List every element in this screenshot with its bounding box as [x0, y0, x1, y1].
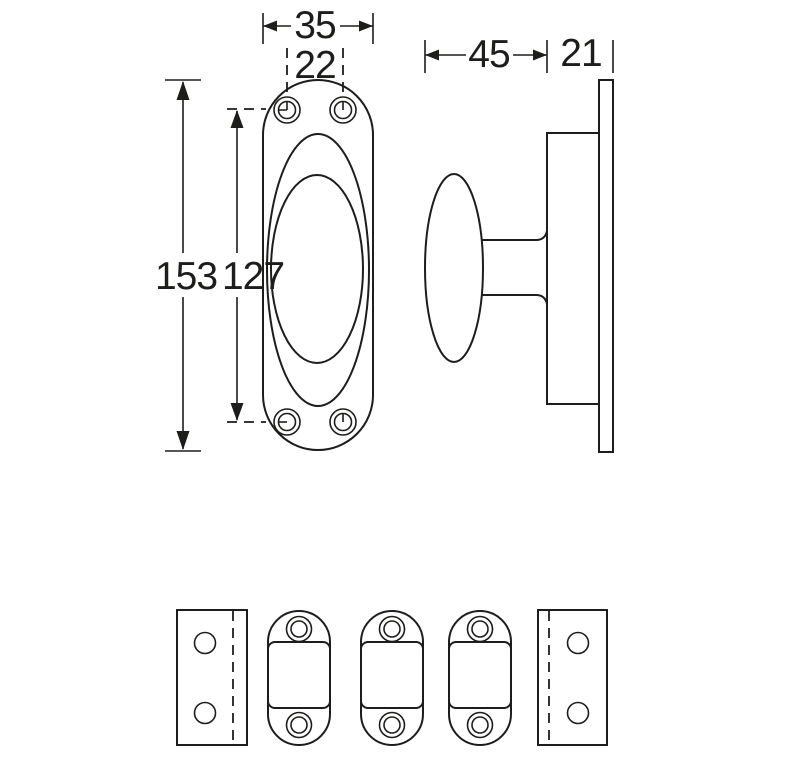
dimension-label-22: 22 [294, 44, 335, 87]
dimension-label-127: 127 [222, 255, 284, 298]
side-view-knob [425, 80, 613, 452]
arrowhead-right [359, 21, 373, 32]
dimension-hole-spacing: 22 [287, 44, 343, 96]
dimension-plate-height: 153 [155, 80, 217, 451]
keeper-outline [268, 611, 330, 745]
keeper-plate-2 [361, 611, 423, 745]
dimension-knob-projection: 45 [425, 33, 547, 76]
dimension-hole-distance: 127 [222, 109, 284, 422]
screw-hole [568, 633, 589, 654]
drawing-canvas: 35 22 153 [0, 0, 800, 774]
keeper-outline [361, 611, 423, 745]
keeper-raised-band [268, 642, 330, 708]
screw-hole-top-right [330, 97, 356, 123]
mounting-angle-plate-right [538, 610, 607, 745]
screw-hole-bottom-right [330, 409, 356, 435]
keeper-plate-1 [268, 611, 330, 745]
screw-hole-bottom-left [274, 409, 300, 435]
drawing-root: 35 22 153 [155, 4, 613, 745]
knob-side-profile [425, 174, 483, 362]
arrowhead-left [263, 21, 277, 32]
backplate-side-profile [599, 80, 613, 452]
screw-hole [287, 713, 312, 738]
keeper-plate-3 [449, 611, 511, 745]
screw-hole [380, 713, 405, 738]
knob-neck-top [481, 231, 547, 240]
arrowhead-down [177, 431, 190, 450]
screw-hole [380, 617, 405, 642]
screw-hole [468, 713, 493, 738]
dimension-label-21: 21 [560, 32, 601, 75]
arrowhead-right [533, 50, 547, 61]
angle-plate-outline [177, 610, 247, 745]
dimension-plate-width: 35 [263, 4, 373, 47]
dimension-label-153: 153 [155, 255, 217, 298]
screw-hole [468, 617, 493, 642]
dimension-label-45: 45 [468, 33, 510, 76]
arrowhead-up [177, 81, 190, 100]
keeper-outline [449, 611, 511, 745]
arrowhead-up [231, 110, 244, 128]
keeper-raised-band [449, 642, 511, 708]
technical-drawing-page: 35 22 153 [0, 0, 800, 774]
knob-front-oval [271, 175, 363, 363]
arrowhead-left [425, 50, 439, 61]
dimension-label-35: 35 [294, 4, 336, 47]
rosette-side-profile [547, 133, 599, 404]
screw-hole-top-left [274, 97, 300, 123]
arrowhead-down [231, 403, 244, 421]
screw-hole [195, 703, 216, 724]
screw-hole [287, 617, 312, 642]
screw-hole [568, 703, 589, 724]
dimension-plate-thickness: 21 [560, 32, 613, 75]
mounting-angle-plate-left [177, 610, 247, 745]
keeper-raised-band [361, 642, 423, 708]
knob-neck-bottom [481, 295, 547, 304]
screw-hole [195, 633, 216, 654]
